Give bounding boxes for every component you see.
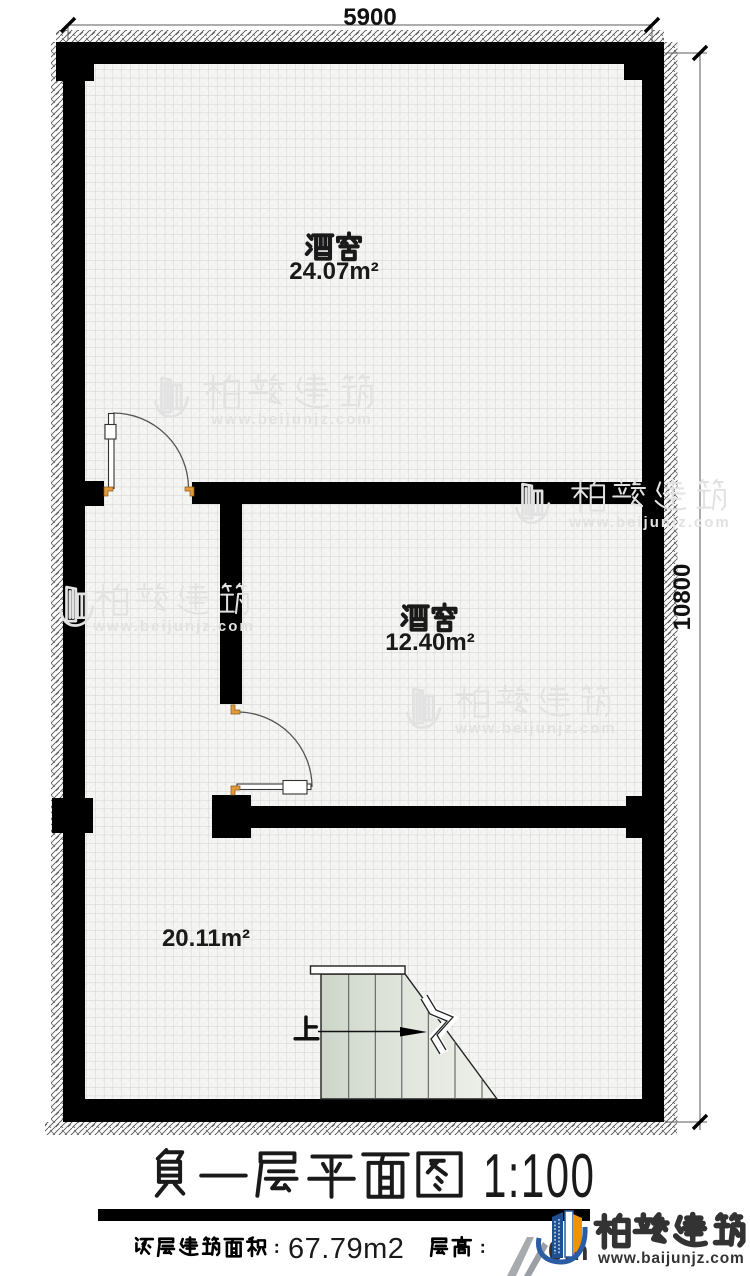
- svg-text:1:100: 1:100: [483, 1142, 595, 1211]
- svg-text:10800: 10800: [669, 564, 696, 631]
- svg-text:67.79m2: 67.79m2: [288, 1233, 404, 1265]
- svg-text:www.beijunjz.com: www.beijunjz.com: [92, 618, 254, 635]
- svg-text:www.beijunjz.com: www.beijunjz.com: [210, 411, 372, 428]
- svg-text:24.07m²: 24.07m²: [289, 258, 378, 285]
- svg-text:20.11m²: 20.11m²: [162, 925, 250, 952]
- svg-text:5900: 5900: [343, 4, 396, 31]
- svg-text:www.baijunjz.com: www.baijunjz.com: [597, 1250, 745, 1267]
- svg-text:www.beijunjz.com: www.beijunjz.com: [454, 720, 616, 737]
- svg-text:www.beijunjz.com: www.beijunjz.com: [568, 514, 730, 531]
- svg-text:12.40m²: 12.40m²: [385, 629, 474, 656]
